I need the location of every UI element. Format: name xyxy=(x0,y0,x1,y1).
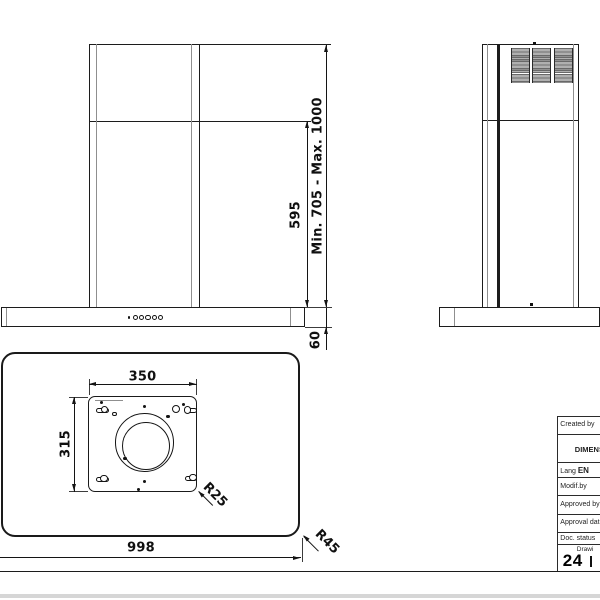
ext-line-body-top xyxy=(305,307,332,308)
dim-line-height-range xyxy=(326,45,327,308)
side-chimney-left-inner-line xyxy=(487,44,488,308)
control-led-dot xyxy=(128,316,130,318)
dim-label-plate-depth: 315 xyxy=(59,430,74,458)
vent-grille-column-3 xyxy=(554,48,573,83)
dim-line-315 xyxy=(74,397,75,492)
dim-350-arrow-right xyxy=(189,382,196,386)
screw-dot-bottom-center xyxy=(143,480,146,483)
dim-595-arrow-bottom xyxy=(305,300,309,307)
side-hood-body-inner-line xyxy=(454,308,455,326)
title-block-modif-by: Modif.by xyxy=(558,478,600,497)
control-button-5 xyxy=(158,315,163,320)
title-block-doc-title: DIMENSIONS xyxy=(558,435,600,464)
drawing-sheet: 595 Min. 705 - Max. 1000 60 xyxy=(0,0,600,600)
sheet-bottom-border xyxy=(0,571,600,572)
dim-350-arrow-left xyxy=(89,382,96,386)
dim-line-998 xyxy=(0,557,301,558)
side-chimney-left-edge xyxy=(482,44,483,308)
dim-label-body-width: 998 xyxy=(127,541,155,556)
dim-595-arrow-top xyxy=(305,121,309,128)
keyhole-circle-bottom-left xyxy=(100,475,108,483)
screw-dot-top-right xyxy=(182,403,185,406)
front-chimney-top-line xyxy=(89,44,331,45)
drawing-number: 24 xyxy=(563,551,583,571)
side-chimney-seam-line xyxy=(497,44,500,308)
side-chimney-right-inner-line xyxy=(573,44,574,308)
screw-dot-mid-right xyxy=(166,415,169,418)
dim-315-arrow-bottom xyxy=(72,484,76,491)
screw-dot-mid-left xyxy=(123,457,126,460)
front-chimney-right-fold-line xyxy=(191,44,192,308)
dim-998-arrow-right xyxy=(293,556,300,560)
front-chimney-right-edge xyxy=(199,44,200,308)
dim-label-plate-width: 350 xyxy=(129,369,157,384)
keyhole-circle-bottom-right xyxy=(189,474,197,482)
drawing-number-partial-glyph xyxy=(590,556,593,568)
title-block: Created by DIMENSIONS Lang EN Modif.by A… xyxy=(557,416,600,572)
dim-range-arrow-bottom xyxy=(324,300,328,307)
dim-range-arrow-top xyxy=(324,45,328,52)
ext-350-right xyxy=(196,379,197,395)
vent-grille-column-1 xyxy=(511,48,530,83)
ext-998-right xyxy=(302,538,303,562)
dim-60-arrow-up xyxy=(324,327,328,334)
dim-315-arrow-top xyxy=(72,397,76,404)
title-block-drawing-cell: Drawi 24 xyxy=(558,545,600,571)
control-button-3 xyxy=(145,315,150,320)
front-chimney-left-fold-line xyxy=(96,44,97,308)
front-chimney-left-edge xyxy=(89,44,90,308)
keyhole-circle-top-right xyxy=(184,406,191,413)
side-chimney-top-line xyxy=(482,44,579,45)
title-block-doc-status: Doc. status xyxy=(558,533,600,545)
front-hood-body-left-inner-line xyxy=(6,308,7,326)
dim-line-350 xyxy=(89,384,197,385)
dim-label-body-corner-radius: R45 xyxy=(312,527,342,557)
side-hood-body xyxy=(439,307,600,327)
title-block-approval-date: Approval date xyxy=(558,515,600,533)
ext-315-bottom xyxy=(69,491,88,492)
side-bottom-mount-mark xyxy=(530,303,533,306)
dim-label-chimney-height: 595 xyxy=(289,201,304,229)
control-button-4 xyxy=(152,315,157,320)
title-block-created-by: Created by xyxy=(558,417,600,435)
side-chimney-right-edge xyxy=(578,44,579,308)
vent-grille-column-2 xyxy=(532,48,551,83)
front-hood-body-right-inner-line xyxy=(290,308,291,326)
title-block-lang-row: Lang EN xyxy=(558,463,600,478)
dim-label-mount-height-range: Min. 705 - Max. 1000 xyxy=(311,97,326,254)
title-block-approved-by: Approved by xyxy=(558,496,600,515)
side-top-mount-mark xyxy=(533,42,536,45)
lang-value: EN xyxy=(578,466,589,475)
lang-label: Lang xyxy=(560,468,576,475)
dim-line-595 xyxy=(307,121,308,307)
bottom-gray-strip xyxy=(0,594,600,598)
dim-label-body-height: 60 xyxy=(308,330,323,349)
side-chimney-joint-line xyxy=(482,120,579,121)
